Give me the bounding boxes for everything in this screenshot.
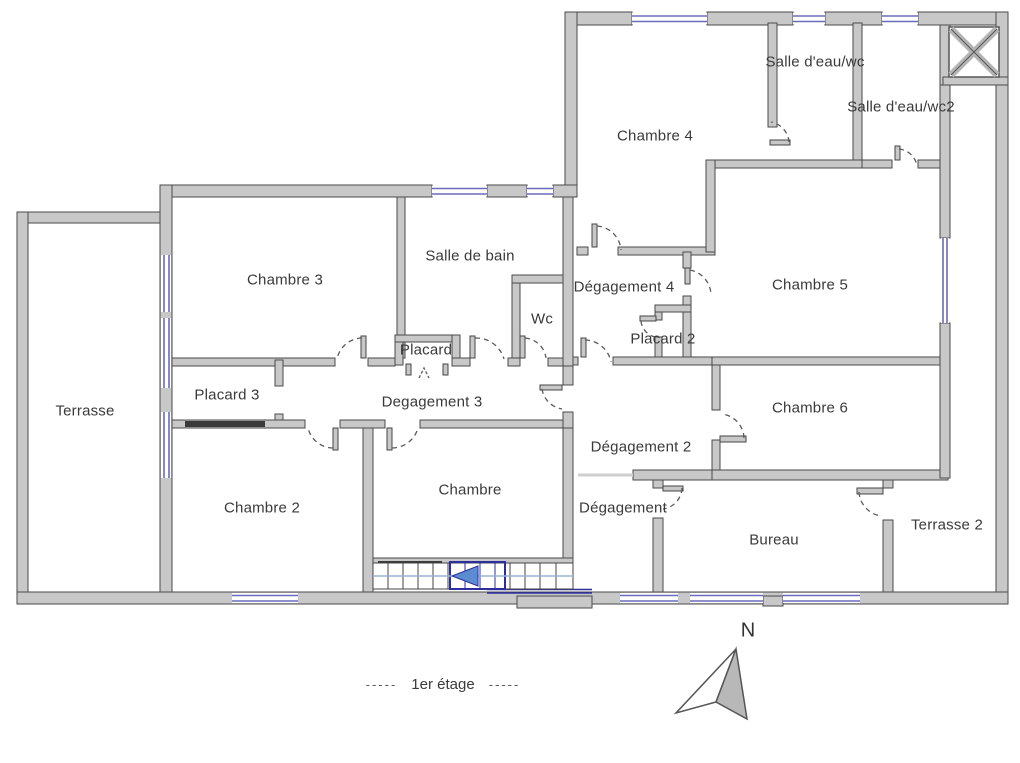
floor-caption: ----- 1er étage ----- xyxy=(318,676,568,693)
room-label-salle-eau-wc2: Salle d'eau/wc2 xyxy=(847,99,955,116)
room-label-bureau: Bureau xyxy=(749,532,799,549)
room-label-chambre-5: Chambre 5 xyxy=(772,277,848,294)
caption-dashes-right: ----- xyxy=(489,677,521,692)
caption-dashes-left: ----- xyxy=(366,677,398,692)
room-label-terrasse-2: Terrasse 2 xyxy=(911,517,983,534)
room-label-salle-de-bain: Salle de bain xyxy=(425,248,514,265)
room-label-placard: Placard xyxy=(400,342,452,359)
room-label-degagement-4: Dégagement 4 xyxy=(574,279,675,296)
north-arrow-icon xyxy=(676,649,747,719)
floorplan: TerrasseChambre 3Salle de bainChambre 4S… xyxy=(0,0,1020,763)
floor-caption-text: 1er étage xyxy=(411,676,474,693)
room-label-chambre-6: Chambre 6 xyxy=(772,400,848,417)
room-label-chambre-2: Chambre 2 xyxy=(224,500,300,517)
shaft-x-icon xyxy=(949,27,999,77)
room-label-degagement-3: Degagement 3 xyxy=(382,394,483,411)
staircase xyxy=(373,562,573,589)
north-label: N xyxy=(741,620,755,643)
room-label-placard-3: Placard 3 xyxy=(194,387,259,404)
room-label-chambre-3: Chambre 3 xyxy=(247,272,323,289)
room-label-placard-2: Placard 2 xyxy=(630,331,695,348)
room-label-chambre-4: Chambre 4 xyxy=(617,128,693,145)
room-label-degagement: Dégagement xyxy=(579,500,667,517)
room-label-wc: Wc xyxy=(531,311,553,328)
room-label-chambre: Chambre xyxy=(438,482,501,499)
room-label-degagement-2: Dégagement 2 xyxy=(591,439,692,456)
room-label-terrasse: Terrasse xyxy=(55,403,114,420)
terrace-door-threshold xyxy=(185,421,265,427)
room-label-salle-eau-wc: Salle d'eau/wc xyxy=(765,54,864,71)
